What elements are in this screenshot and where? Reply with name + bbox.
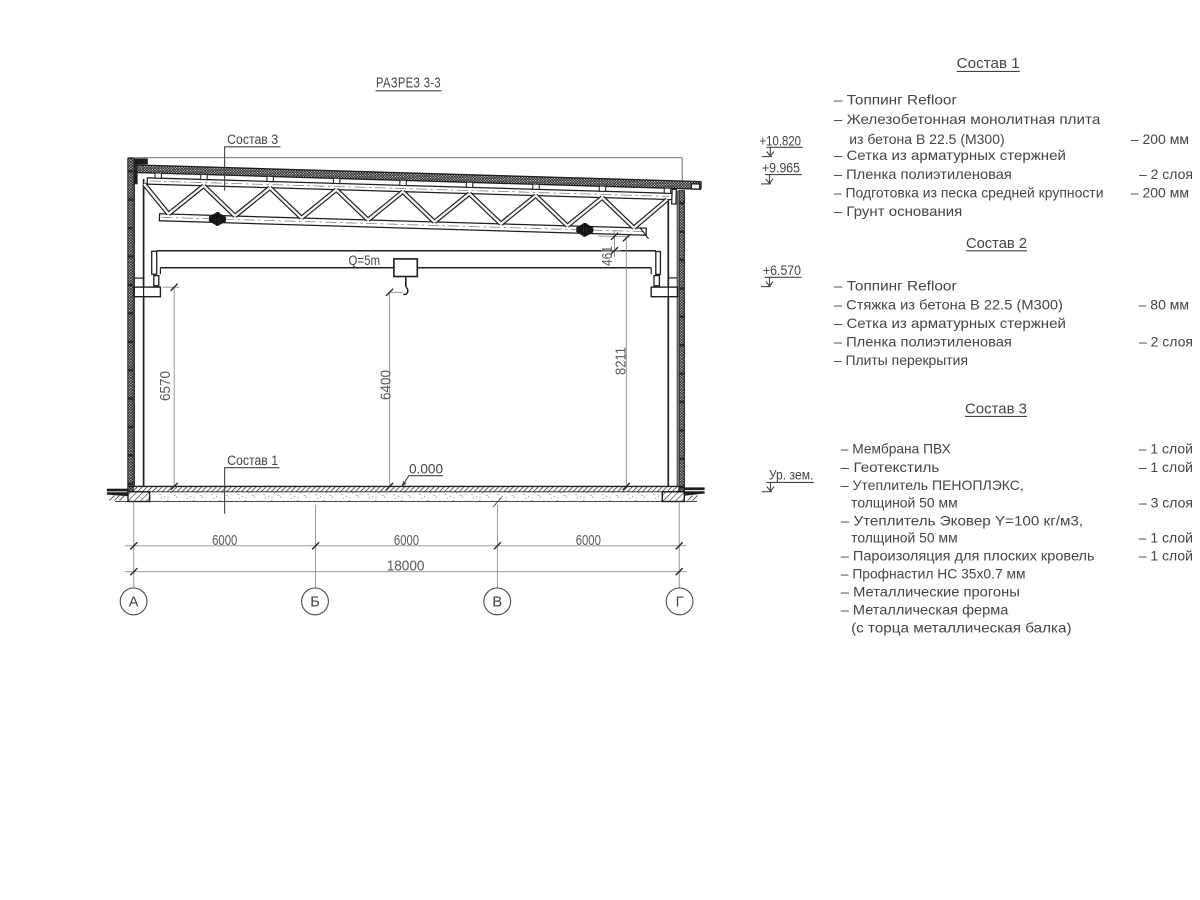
svg-text:+9.965: +9.965: [762, 161, 800, 176]
svg-text:Состав 2: Состав 2: [966, 236, 1027, 252]
svg-text:– 2 слоя: – 2 слоя: [1139, 334, 1193, 350]
svg-text:– 1 слой: – 1 слой: [1139, 548, 1193, 564]
svg-text:– 200 мм: – 200 мм: [1131, 131, 1189, 147]
svg-text:6000: 6000: [394, 533, 419, 549]
svg-text:6000: 6000: [576, 533, 601, 549]
svg-text:– Топпинг Refloor: – Топпинг Refloor: [834, 278, 957, 294]
svg-text:Состав 3: Состав 3: [965, 402, 1027, 418]
svg-text:из бетона В 22.5 (М300): из бетона В 22.5 (М300): [849, 131, 1005, 147]
svg-text:– Топпинг Refloor: – Топпинг Refloor: [834, 91, 957, 107]
svg-text:– 1 слой: – 1 слой: [1139, 530, 1193, 546]
svg-text:толщиной 50 мм: толщиной 50 мм: [851, 494, 958, 510]
svg-text:– Металлические прогоны: – Металлические прогоны: [841, 583, 1020, 599]
svg-text:– Грунт основания: – Грунт основания: [834, 203, 962, 219]
svg-text:0.000: 0.000: [409, 461, 443, 476]
svg-text:+6.570: +6.570: [763, 263, 801, 278]
svg-text:– 200 мм: – 200 мм: [1131, 185, 1189, 201]
svg-text:6400: 6400: [378, 370, 394, 400]
svg-text:– 1 слой: – 1 слой: [1139, 441, 1193, 457]
svg-text:– Стяжка из бетона В 22.5 (М30: – Стяжка из бетона В 22.5 (М300): [834, 296, 1063, 312]
svg-text:18000: 18000: [387, 558, 425, 574]
svg-text:Ур. зем.: Ур. зем.: [769, 468, 814, 483]
svg-text:– Геотекстиль: – Геотекстиль: [841, 459, 940, 475]
svg-text:– Пароизоляция для плоских кро: – Пароизоляция для плоских кровель: [841, 548, 1095, 564]
svg-text:6000: 6000: [212, 533, 237, 549]
svg-text:– Сетка из арматурных стержней: – Сетка из арматурных стержней: [834, 315, 1066, 331]
svg-text:– Подготовка из песка средней: – Подготовка из песка средней крупности: [834, 185, 1104, 201]
svg-text:– Железобетонная монолитная п: – Железобетонная монолитная плита: [834, 111, 1101, 127]
svg-text:(с торца металлическая балка): (с торца металлическая балка): [851, 620, 1072, 636]
svg-text:+10.820: +10.820: [760, 133, 802, 148]
svg-text:– Плиты перекрытия: – Плиты перекрытия: [834, 352, 968, 368]
svg-text:– 80 мм: – 80 мм: [1139, 296, 1189, 312]
svg-text:– Пленка полиэтиленовая: – Пленка полиэтиленовая: [834, 166, 1012, 182]
svg-text:– 3 слоя: – 3 слоя: [1139, 494, 1193, 510]
svg-text:– Профнастил НС 35х0.7 мм: – Профнастил НС 35х0.7 мм: [841, 565, 1026, 581]
svg-text:6570: 6570: [158, 371, 174, 401]
svg-text:толщиной 50 мм: толщиной 50 мм: [851, 530, 958, 546]
svg-text:Г: Г: [676, 595, 684, 611]
svg-text:А: А: [129, 595, 139, 611]
svg-text:– Пленка полиэтиленовая: – Пленка полиэтиленовая: [834, 334, 1012, 350]
svg-text:– Металлическая ферма: – Металлическая ферма: [841, 601, 1009, 617]
svg-text:461: 461: [600, 246, 616, 266]
svg-text:Состав 3: Состав 3: [227, 132, 278, 147]
svg-text:– Сетка из арматурных стержней: – Сетка из арматурных стержней: [834, 147, 1066, 163]
svg-text:Q=5m: Q=5m: [349, 253, 381, 269]
svg-text:8211: 8211: [613, 347, 629, 375]
svg-text:– 2 слоя: – 2 слоя: [1139, 166, 1193, 182]
svg-text:Состав 1: Состав 1: [957, 56, 1020, 72]
svg-text:Б: Б: [310, 595, 320, 611]
svg-text:– Утеплитель Эковер Y=100 кг/м: – Утеплитель Эковер Y=100 кг/м3,: [841, 512, 1083, 528]
svg-text:– 1 слой: – 1 слой: [1139, 459, 1193, 475]
svg-text:Состав 1: Состав 1: [227, 453, 278, 468]
svg-text:РАЗРЕЗ 3-3: РАЗРЕЗ 3-3: [376, 75, 441, 92]
svg-text:В: В: [492, 595, 502, 611]
svg-text:– Утеплитель ПЕНОПЛЭКС,: – Утеплитель ПЕНОПЛЭКС,: [841, 477, 1024, 493]
svg-text:– Мембрана ПВХ: – Мембрана ПВХ: [841, 441, 952, 457]
